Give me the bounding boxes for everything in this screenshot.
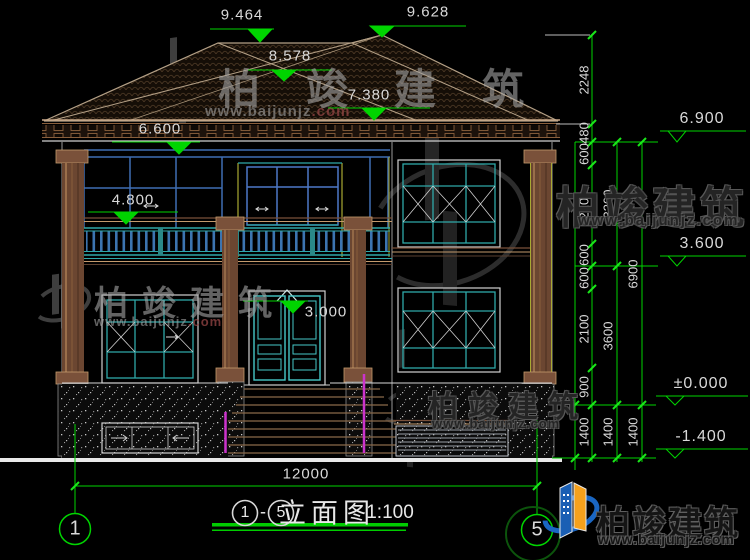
ground-line: [0, 458, 562, 462]
dim-chain-c-0: 6900: [626, 260, 641, 289]
dim-chain-a-4: 600: [577, 244, 592, 266]
watermark-url-tail: .com: [188, 314, 222, 329]
watermark-url-left: www.baijunjz.com: [94, 314, 222, 329]
title-axis-from: 1: [241, 504, 250, 522]
watermark-url-tail: .com: [311, 103, 350, 120]
elevation-neg1400: -1.400: [675, 428, 726, 446]
level-balcony: 4.800: [112, 192, 155, 209]
level-eave-left: 6.600: [139, 121, 182, 138]
title-dash: -: [260, 502, 266, 523]
watermark-url-right: www.baijunjz.com: [578, 212, 739, 229]
dim-chain-c-1: 1400: [626, 418, 641, 447]
dim-chain-a-1: 480: [577, 122, 592, 144]
dim-total-width: 12000: [283, 466, 330, 483]
dim-chain-a-0: 2248: [577, 66, 592, 95]
elevation-3600: 3.600: [679, 235, 724, 253]
watermark-url-main: www.baijunjz: [94, 314, 188, 329]
watermark-url-main: www.baijunjz: [205, 103, 311, 120]
elevation-6900: 6.900: [679, 110, 724, 128]
brand-logo-icon: [540, 482, 601, 538]
dim-chain-a-6: 2100: [577, 315, 592, 344]
axis-bubble-5: 5: [531, 519, 542, 542]
axis-bubble-1: 1: [69, 518, 80, 541]
level-ridge-left: 9.464: [221, 7, 264, 24]
dim-chain-b-2: 1400: [601, 418, 616, 447]
watermark-url-roof: www.baijunjz.com: [205, 103, 350, 120]
porch-columns: [216, 217, 372, 456]
level-ridge-right: 9.628: [407, 4, 450, 21]
drawing-title: 立面图: [279, 492, 375, 531]
dim-chain-a-5: 600: [577, 267, 592, 289]
logo-url-text: www.baijunjz.com: [598, 531, 735, 547]
dim-chain-a-2: 600: [577, 143, 592, 165]
dim-chain-b-1: 3600: [601, 322, 616, 351]
eave-cornice: [42, 120, 560, 141]
cad-elevation-drawing: 9.464 9.628 8.578 7.380 6.600 4.800 3.00…: [0, 0, 750, 560]
watermark-url-bottom: www.baijunjz.com: [432, 416, 560, 431]
level-door: 3.000: [305, 304, 348, 321]
floor-band-right: [392, 248, 552, 256]
drawing-scale: 1:100: [366, 502, 414, 524]
elevation-0000: ±0.000: [674, 375, 729, 393]
